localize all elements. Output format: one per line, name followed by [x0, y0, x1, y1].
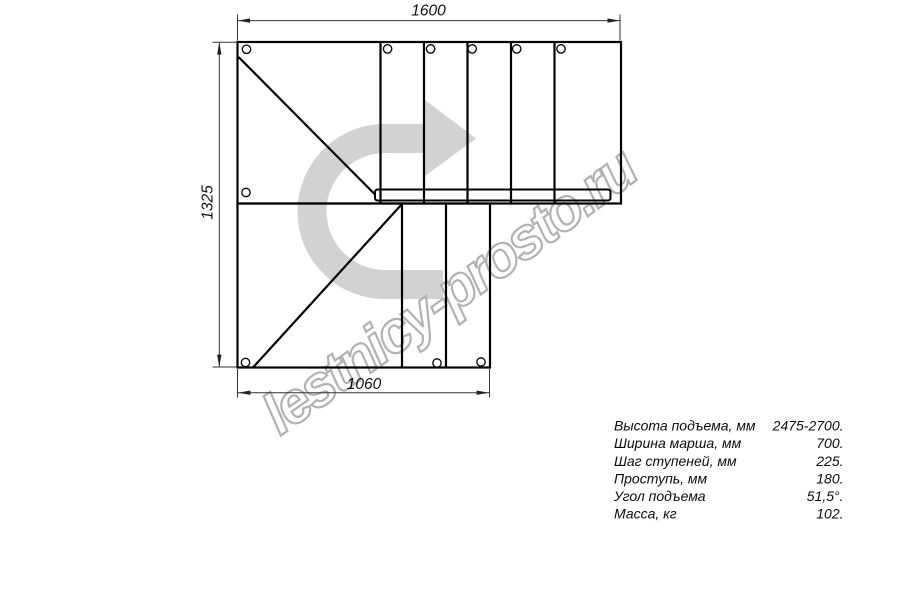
svg-text:1060: 1060: [347, 376, 382, 393]
svg-text:Шаг ступеней, мм: Шаг ступеней, мм: [614, 453, 737, 469]
svg-text:2475-2700.: 2475-2700.: [772, 418, 844, 434]
svg-text:225.: 225.: [815, 453, 843, 469]
svg-text:102.: 102.: [816, 506, 843, 522]
svg-text:180.: 180.: [816, 470, 843, 486]
svg-text:Масса, кг: Масса, кг: [614, 506, 677, 522]
svg-text:51,5°.: 51,5°.: [807, 488, 844, 504]
svg-text:Проступь, мм: Проступь, мм: [614, 470, 708, 486]
svg-text:1600: 1600: [411, 3, 446, 20]
svg-text:Высота подъема, мм: Высота подъема, мм: [614, 418, 756, 434]
svg-text:Угол подъема: Угол подъема: [613, 488, 706, 504]
svg-text:1325: 1325: [200, 185, 217, 220]
svg-text:700.: 700.: [816, 435, 843, 451]
svg-text:Ширина марша, мм: Ширина марша, мм: [614, 435, 742, 451]
